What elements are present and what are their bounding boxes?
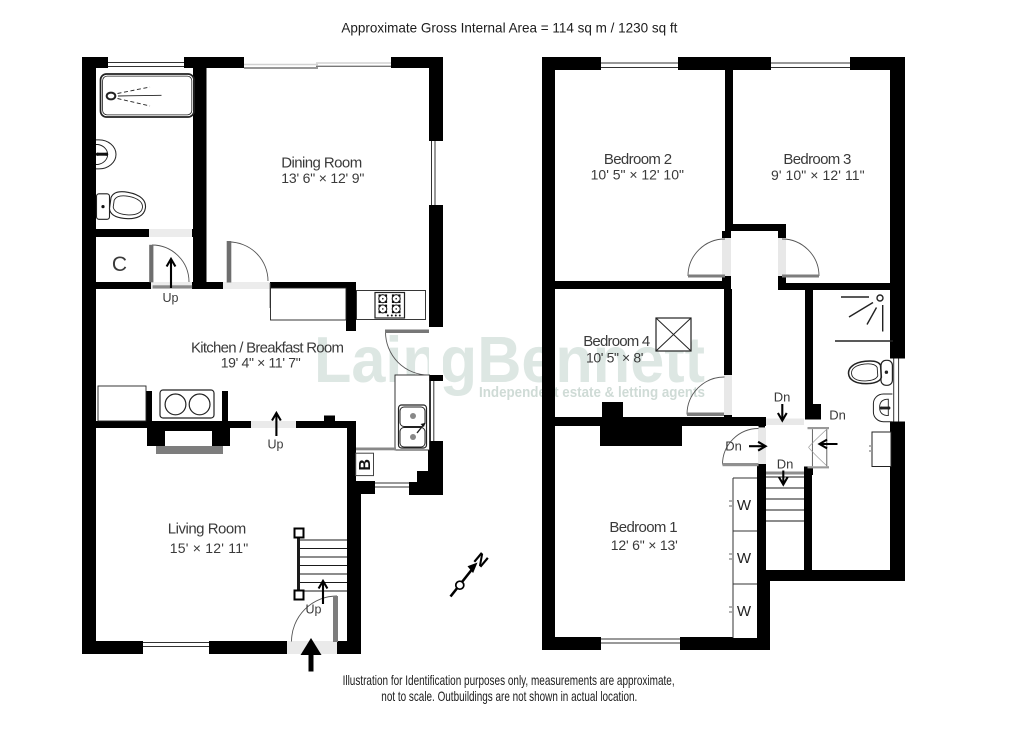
svg-text:10' 5" × 12' 10": 10' 5" × 12' 10" xyxy=(591,167,684,183)
svg-text:Dn: Dn xyxy=(777,457,794,472)
svg-text:Bedroom 4: Bedroom 4 xyxy=(583,333,650,350)
svg-text:10' 5" × 8': 10' 5" × 8' xyxy=(586,349,643,365)
svg-text:W: W xyxy=(737,550,752,567)
svg-text:Bedroom 2: Bedroom 2 xyxy=(604,151,672,168)
svg-text:W: W xyxy=(737,603,752,620)
svg-text:12' 6" × 13': 12' 6" × 13' xyxy=(611,537,678,553)
svg-text:Up: Up xyxy=(268,438,284,452)
svg-text:Dn: Dn xyxy=(725,439,742,454)
svg-text:19' 4" × 11' 7": 19' 4" × 11' 7" xyxy=(221,354,301,370)
svg-text:Bedroom 3: Bedroom 3 xyxy=(783,151,851,168)
svg-text:Dn: Dn xyxy=(774,390,791,405)
svg-text:Living Room: Living Room xyxy=(168,521,247,538)
svg-text:Dining Room: Dining Room xyxy=(281,155,362,172)
svg-text:Bedroom 1: Bedroom 1 xyxy=(609,519,677,536)
svg-text:Independent estate & letting a: Independent estate & letting agents xyxy=(479,384,705,401)
svg-text:Dn: Dn xyxy=(829,408,846,423)
svg-text:W: W xyxy=(737,497,752,514)
svg-text:9' 10" × 12' 11": 9' 10" × 12' 11" xyxy=(771,167,865,183)
svg-text:C: C xyxy=(112,253,127,276)
svg-text:not to scale. Outbuildings ar: not to scale. Outbuildings are not shown… xyxy=(381,688,637,704)
svg-text:Up: Up xyxy=(163,291,179,305)
svg-text:Approximate Gross Internal Are: Approximate Gross Internal Area = 114 sq… xyxy=(341,20,677,36)
svg-text:13' 6" × 12' 9": 13' 6" × 12' 9" xyxy=(281,170,364,186)
svg-text:Illustration for Identificatio: Illustration for Identification purposes… xyxy=(343,672,675,688)
svg-text:15' × 12' 11": 15' × 12' 11" xyxy=(170,540,249,556)
svg-text:B: B xyxy=(357,459,374,471)
svg-text:Up: Up xyxy=(306,603,322,617)
